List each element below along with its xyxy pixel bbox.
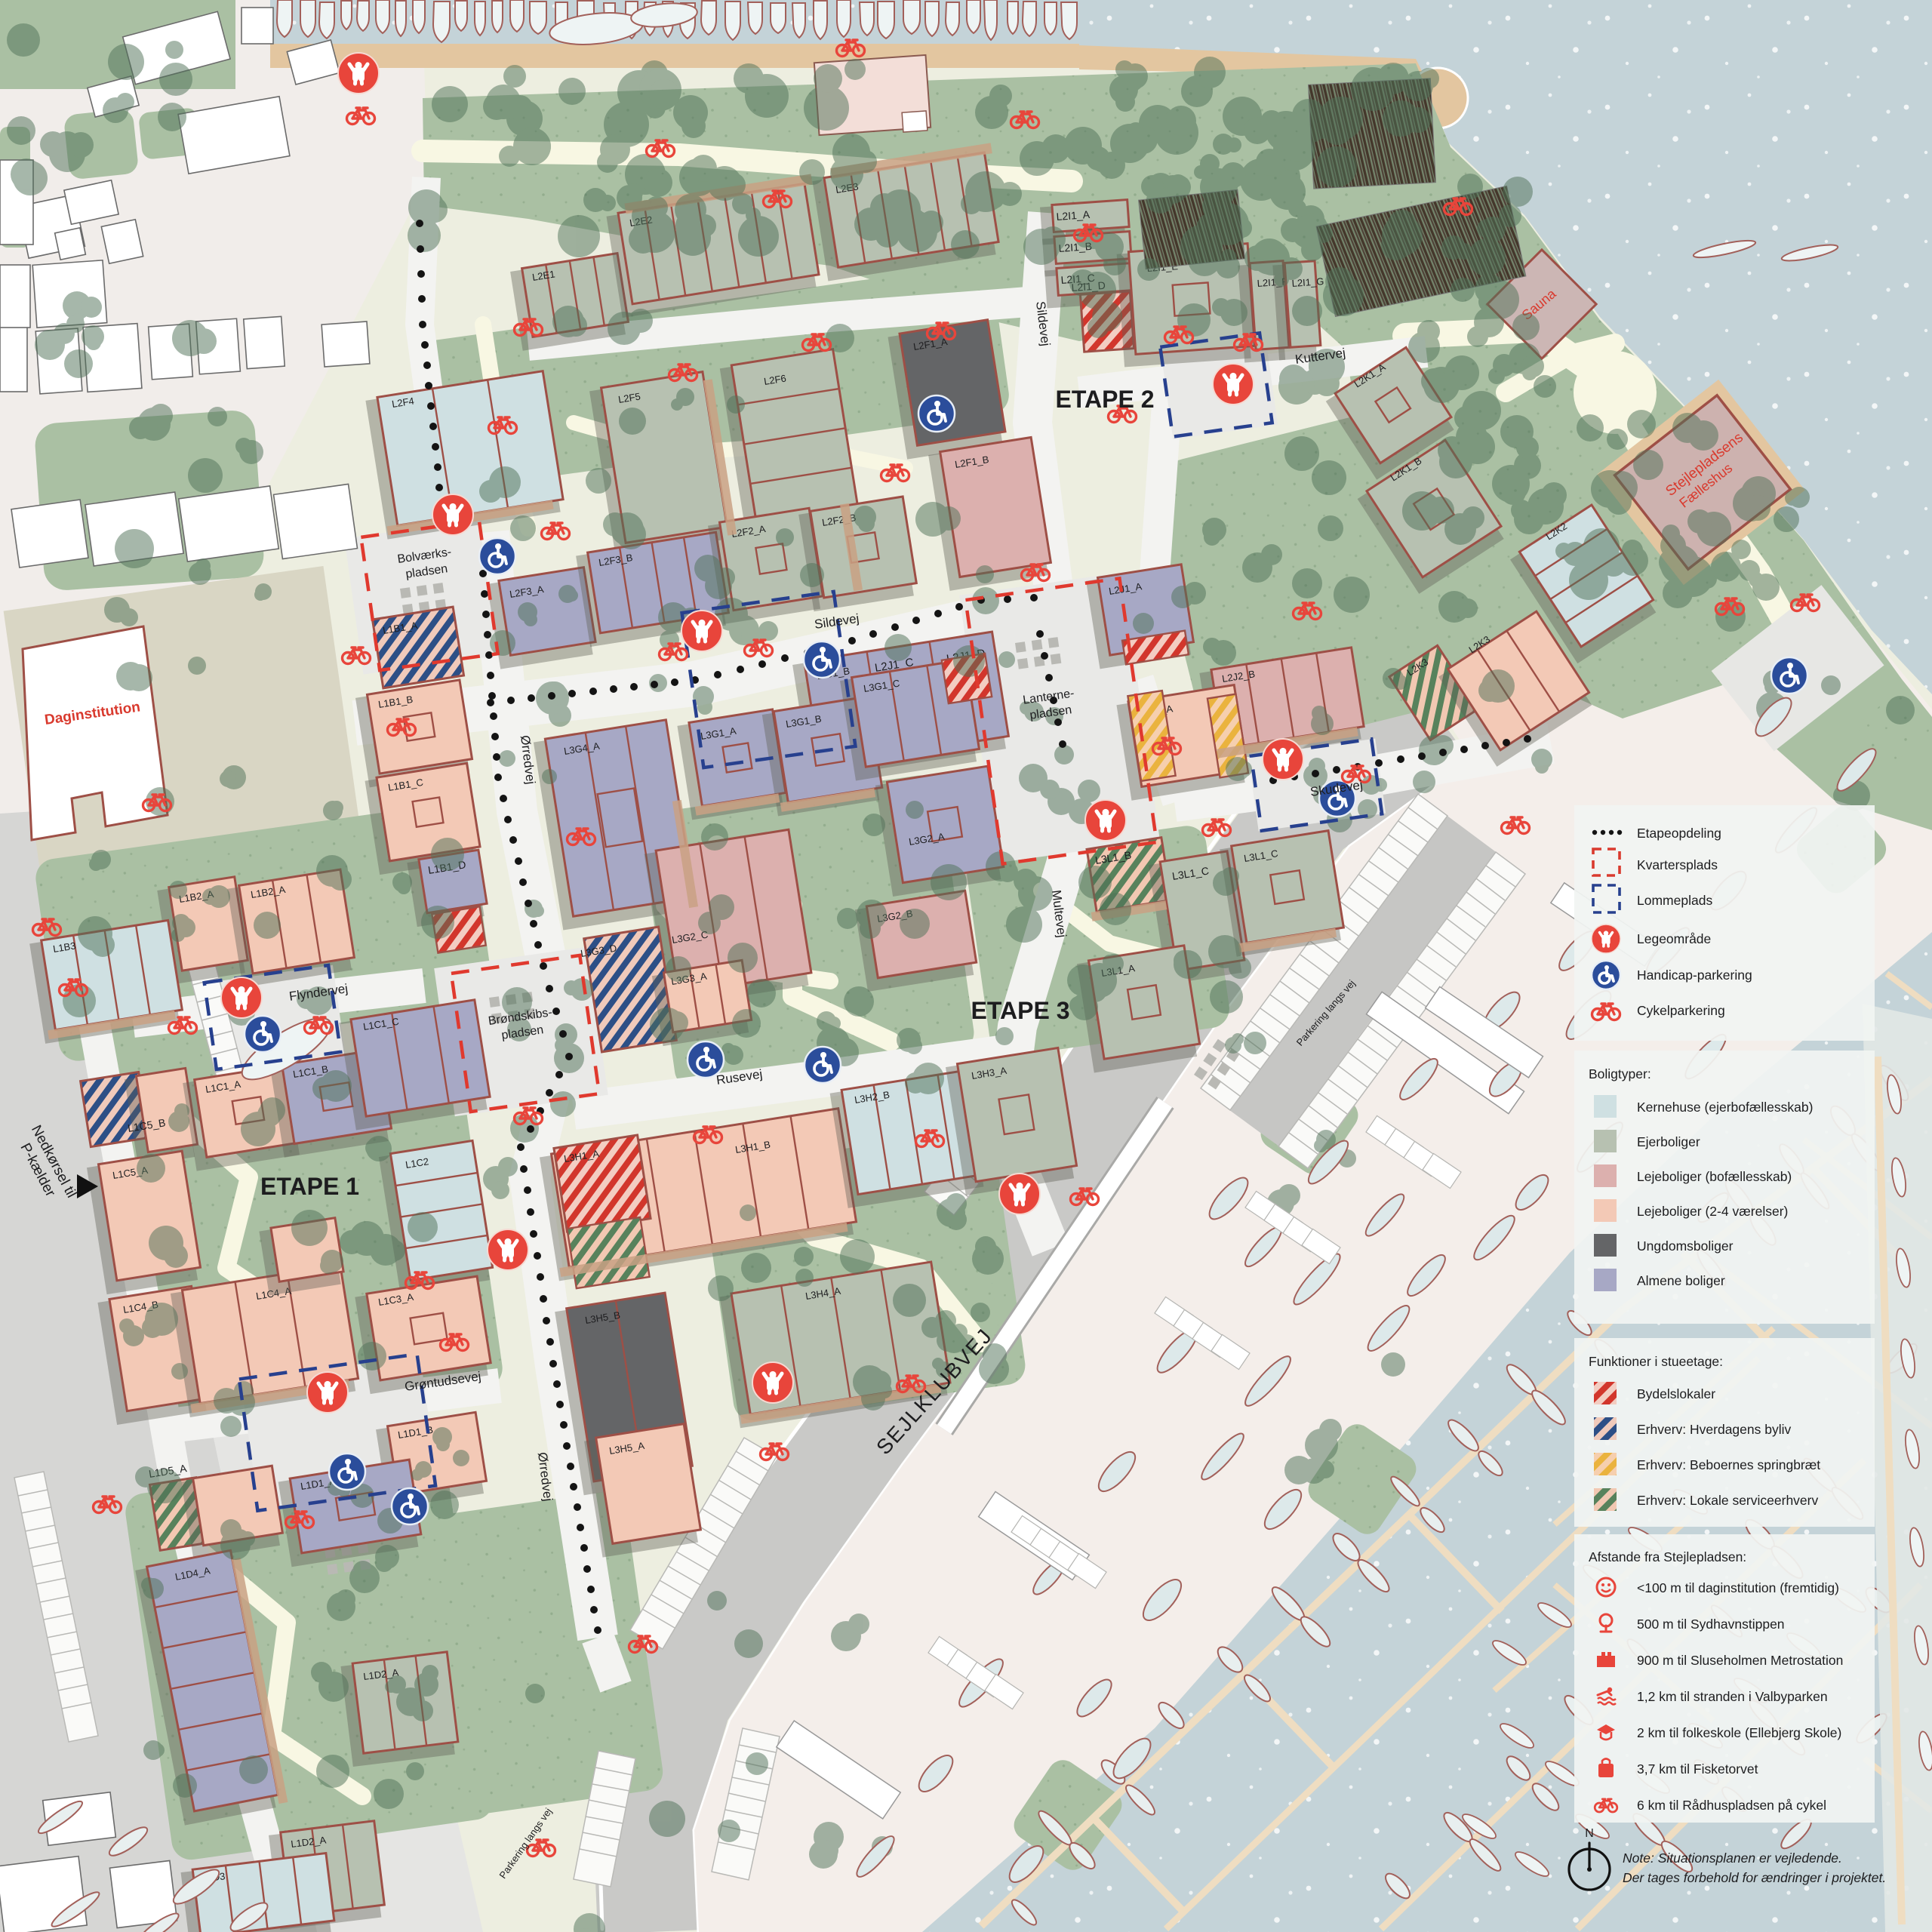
svg-text:Cykelparkering: Cykelparkering: [1637, 1003, 1725, 1018]
svg-text:Der tages forbehold for ændrin: Der tages forbehold for ændringer i proj…: [1623, 1870, 1886, 1885]
svg-text:<100 m til daginstitution (fre: <100 m til daginstitution (fremtidig): [1637, 1580, 1839, 1595]
svg-text:N: N: [1585, 1827, 1594, 1840]
svg-text:ETAPE 1: ETAPE 1: [260, 1173, 359, 1200]
svg-text:Handicap-parkering: Handicap-parkering: [1637, 968, 1752, 983]
svg-text:500 m til Sydhavnstippen: 500 m til Sydhavnstippen: [1637, 1617, 1785, 1632]
svg-text:Legeområde: Legeområde: [1637, 931, 1711, 946]
svg-text:ETAPE 3: ETAPE 3: [971, 997, 1070, 1024]
svg-text:Boligtyper:: Boligtyper:: [1589, 1066, 1651, 1081]
svg-text:Note: Situationsplanen er vejl: Note: Situationsplanen er vejledende.: [1623, 1850, 1842, 1866]
svg-text:Erhverv: Lokale serviceerhverv: Erhverv: Lokale serviceerhverv: [1637, 1493, 1818, 1508]
svg-text:L2I1_A: L2I1_A: [1056, 208, 1091, 223]
svg-text:Lejeboliger (bofællesskab): Lejeboliger (bofællesskab): [1637, 1169, 1792, 1184]
svg-text:Erhverv: Beboernes springbræt: Erhverv: Beboernes springbræt: [1637, 1457, 1820, 1472]
svg-text:Lommeplads: Lommeplads: [1637, 893, 1712, 908]
svg-text:2 km til folkeskole (Ellebjerg: 2 km til folkeskole (Ellebjerg Skole): [1637, 1725, 1841, 1740]
svg-text:Etapeopdeling: Etapeopdeling: [1637, 826, 1721, 841]
svg-text:900 m til Sluseholmen Metrosta: 900 m til Sluseholmen Metrostation: [1637, 1653, 1843, 1668]
svg-text:Ungdomsboliger: Ungdomsboliger: [1637, 1238, 1734, 1254]
svg-text:3,7 km til Fisketorvet: 3,7 km til Fisketorvet: [1637, 1761, 1758, 1777]
svg-text:Ejerboliger: Ejerboliger: [1637, 1134, 1700, 1149]
svg-text:Erhverv: Hverdagens byliv: Erhverv: Hverdagens byliv: [1637, 1422, 1791, 1437]
svg-text:Funktioner i stueetage:: Funktioner i stueetage:: [1589, 1354, 1723, 1369]
svg-text:Kernehuse (ejerbofællesskab): Kernehuse (ejerbofællesskab): [1637, 1100, 1813, 1115]
svg-text:Lejeboliger (2-4 værelser): Lejeboliger (2-4 værelser): [1637, 1204, 1788, 1219]
svg-text:ETAPE 2: ETAPE 2: [1056, 386, 1155, 413]
svg-text:Almene boliger: Almene boliger: [1637, 1273, 1725, 1288]
svg-text:6 km til Rådhuspladsen på cyke: 6 km til Rådhuspladsen på cykel: [1637, 1798, 1826, 1813]
svg-text:Afstande fra Stejlepladsen:: Afstande fra Stejlepladsen:: [1589, 1549, 1746, 1564]
svg-text:1,2 km til stranden i Valbypar: 1,2 km til stranden i Valbyparken: [1637, 1689, 1828, 1704]
svg-text:Kvartersplads: Kvartersplads: [1637, 857, 1718, 872]
svg-text:Bydelslokaler: Bydelslokaler: [1637, 1386, 1715, 1401]
